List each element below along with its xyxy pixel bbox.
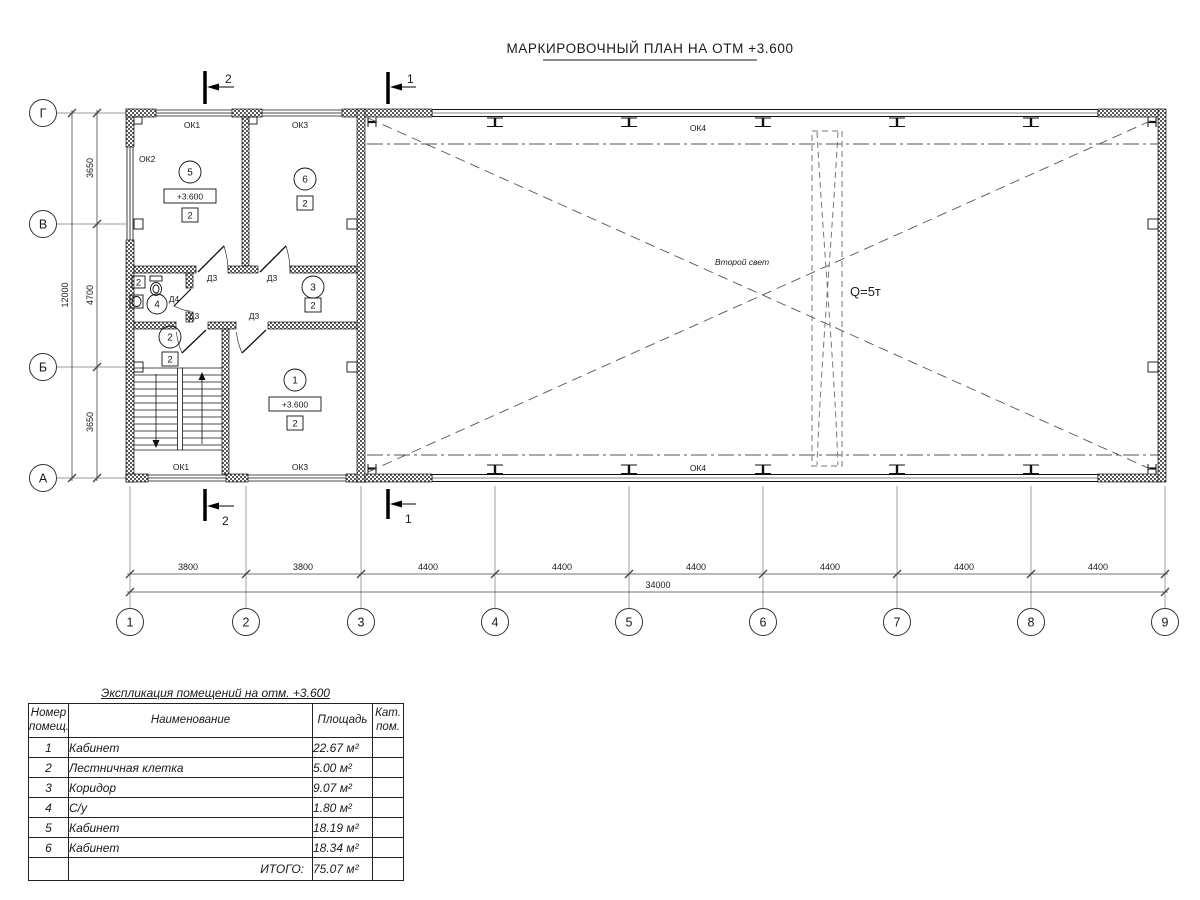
total-label-cell: ИТОГО: [69, 858, 313, 881]
room-name-cell: С/у [69, 798, 313, 818]
window-label-ok1-bottom: ОК1 [173, 462, 190, 472]
window-symbols [127, 110, 346, 481]
drawing-sheet: МАРКИРОВОЧНЫЙ ПЛАН НА ОТМ +3.600 2 1 2 1 [0, 0, 1200, 900]
section-mark-1-top: 1 [388, 72, 416, 104]
room-area-cell: 18.19 м² [313, 818, 373, 838]
page-title: МАРКИРОВОЧНЫЙ ПЛАН НА ОТМ +3.600 [506, 41, 793, 56]
grid-axis-label: 8 [1028, 616, 1035, 630]
room-num-cell [29, 858, 69, 881]
category-label: 2 [136, 278, 141, 289]
room-cat-cell [373, 798, 404, 818]
room-name-cell: Лестничная клетка [69, 758, 313, 778]
wc-icon [150, 276, 162, 296]
crane-outline [812, 131, 842, 466]
section-mark-2-top: 2 [205, 71, 234, 104]
room-num-cell: 2 [29, 758, 69, 778]
room-name-cell: Кабинет [69, 738, 313, 758]
room-cat-cell [373, 738, 404, 758]
grid-axis-label: 7 [894, 616, 901, 630]
room-num-cell: 6 [29, 838, 69, 858]
dim-label: 4700 [85, 285, 95, 305]
window-label-ok3-bottom: ОК3 [292, 462, 309, 472]
grid-axis-label: 2 [243, 616, 250, 630]
category-label: 2 [187, 211, 192, 222]
dim-label: 4400 [418, 562, 438, 572]
section-mark-1-bottom: 1 [388, 489, 416, 526]
section-label: 1 [407, 72, 414, 86]
room-cat-cell [373, 858, 404, 881]
col-header-text: Кат. [375, 707, 401, 719]
col-header-area: Площадь [313, 704, 373, 738]
room-area-cell: 18.34 м² [313, 838, 373, 858]
room-cat-cell [373, 838, 404, 858]
grid-axis-label: 4 [492, 616, 499, 630]
grid-bubbles-left: Г В Б А [30, 100, 57, 492]
crane-capacity-label: Q=5т [850, 284, 881, 299]
category-label: 2 [167, 355, 172, 366]
floor-plan-svg: МАРКИРОВОЧНЫЙ ПЛАН НА ОТМ +3.600 2 1 2 1 [0, 0, 1200, 665]
category-label: 2 [292, 419, 297, 430]
section-label: 2 [222, 514, 229, 528]
col-header-name: Наименование [69, 704, 313, 738]
grid-axis-label: 3 [358, 616, 365, 630]
col-header-num: Номерпомещ. [29, 704, 69, 738]
window-label-ok3: ОК3 [292, 120, 309, 130]
dim-label: 4400 [686, 562, 706, 572]
section-mark-2-bottom: 2 [205, 489, 234, 528]
grid-axis-label: Б [39, 361, 47, 375]
room-num-cell: 4 [29, 798, 69, 818]
category-label: 2 [302, 199, 307, 210]
grid-axis-label: 5 [626, 616, 633, 630]
table-header-row: Номерпомещ. Наименование Площадь Кат.пом… [29, 704, 404, 738]
room-num-cell: 1 [29, 738, 69, 758]
dim-total-label: 12000 [60, 282, 70, 307]
room-area-cell: 1.80 м² [313, 798, 373, 818]
door-label-d4: Д4 [169, 294, 180, 304]
room-num-cell: 5 [29, 818, 69, 838]
room-name-cell: Кабинет [69, 818, 313, 838]
section-label: 1 [405, 512, 412, 526]
grid-axis-label: В [39, 218, 47, 232]
elevation-label: +3.600 [177, 192, 204, 202]
grid-axis-label: 6 [760, 616, 767, 630]
col-header-cat: Кат.пом. [373, 704, 404, 738]
dim-label: 3650 [85, 412, 95, 432]
grid-axis-label: Г [40, 107, 47, 121]
grid-axis-label: 1 [127, 616, 134, 630]
col-header-text: пом. [376, 721, 400, 733]
col-header-text: помещ. [29, 721, 69, 733]
dim-label: 3800 [293, 562, 313, 572]
room-cat-cell [373, 778, 404, 798]
total-area-cell: 75.07 м² [313, 858, 373, 881]
room-number: 1 [292, 376, 298, 387]
room-name-cell: Кабинет [69, 838, 313, 858]
grid-axis-label: А [39, 472, 48, 486]
explication-title: Экспликация помещений на отм. +3.600 [28, 686, 403, 700]
room-number: 4 [154, 300, 160, 311]
room-number: 6 [302, 175, 308, 186]
void-diagonals [368, 118, 1157, 472]
room-area-cell: 5.00 м² [313, 758, 373, 778]
col-header-text: Номер [31, 707, 66, 719]
section-label: 2 [225, 72, 232, 86]
walls [126, 109, 1166, 482]
door-label-d3: Д3 [249, 311, 260, 321]
grid-axis-label: 9 [1162, 616, 1169, 630]
column-tabs [134, 117, 1158, 372]
door-label-d3: Д3 [189, 311, 200, 321]
door-symbols [174, 246, 290, 353]
room-number: 5 [187, 168, 193, 179]
door-label-d3: Д3 [207, 273, 218, 283]
dim-label: 3650 [85, 158, 95, 178]
hall-window-bands [365, 110, 1160, 482]
second-light-label: Второй свет [715, 257, 769, 267]
stairs [134, 368, 222, 450]
table-row: 3 Коридор 9.07 м² [29, 778, 404, 798]
room-number: 2 [167, 333, 173, 344]
elevation-label: +3.600 [282, 400, 309, 410]
door-label-d3: Д3 [267, 273, 278, 283]
room-number: 3 [310, 283, 316, 294]
room-cat-cell [373, 758, 404, 778]
table-row: 2 Лестничная клетка 5.00 м² [29, 758, 404, 778]
dim-label: 4400 [552, 562, 572, 572]
window-label-ok1: ОК1 [184, 120, 201, 130]
table-row: 6 Кабинет 18.34 м² [29, 838, 404, 858]
table-row: 4 С/у 1.80 м² [29, 798, 404, 818]
dim-label: 3800 [178, 562, 198, 572]
dim-total-label: 34000 [645, 580, 670, 590]
room-area-cell: 9.07 м² [313, 778, 373, 798]
room-area-cell: 22.67 м² [313, 738, 373, 758]
table-row: 5 Кабинет 18.19 м² [29, 818, 404, 838]
room-num-cell: 3 [29, 778, 69, 798]
dim-label: 4400 [954, 562, 974, 572]
crane-rails [367, 144, 1158, 455]
dim-label: 4400 [1088, 562, 1108, 572]
table-row: 1 Кабинет 22.67 м² [29, 738, 404, 758]
window-label-ok4-top: ОК4 [690, 123, 707, 133]
window-label-ok4-bottom: ОК4 [690, 463, 707, 473]
window-label-ok2: ОК2 [139, 154, 156, 164]
table-total-row: ИТОГО: 75.07 м² [29, 858, 404, 881]
room-name-cell: Коридор [69, 778, 313, 798]
dim-label: 4400 [820, 562, 840, 572]
category-label: 2 [310, 301, 315, 312]
grid-bubbles-bottom: 1 2 3 4 5 6 7 8 9 [117, 609, 1179, 636]
rooms-table: Номерпомещ. Наименование Площадь Кат.пом… [28, 703, 404, 881]
room-cat-cell [373, 818, 404, 838]
